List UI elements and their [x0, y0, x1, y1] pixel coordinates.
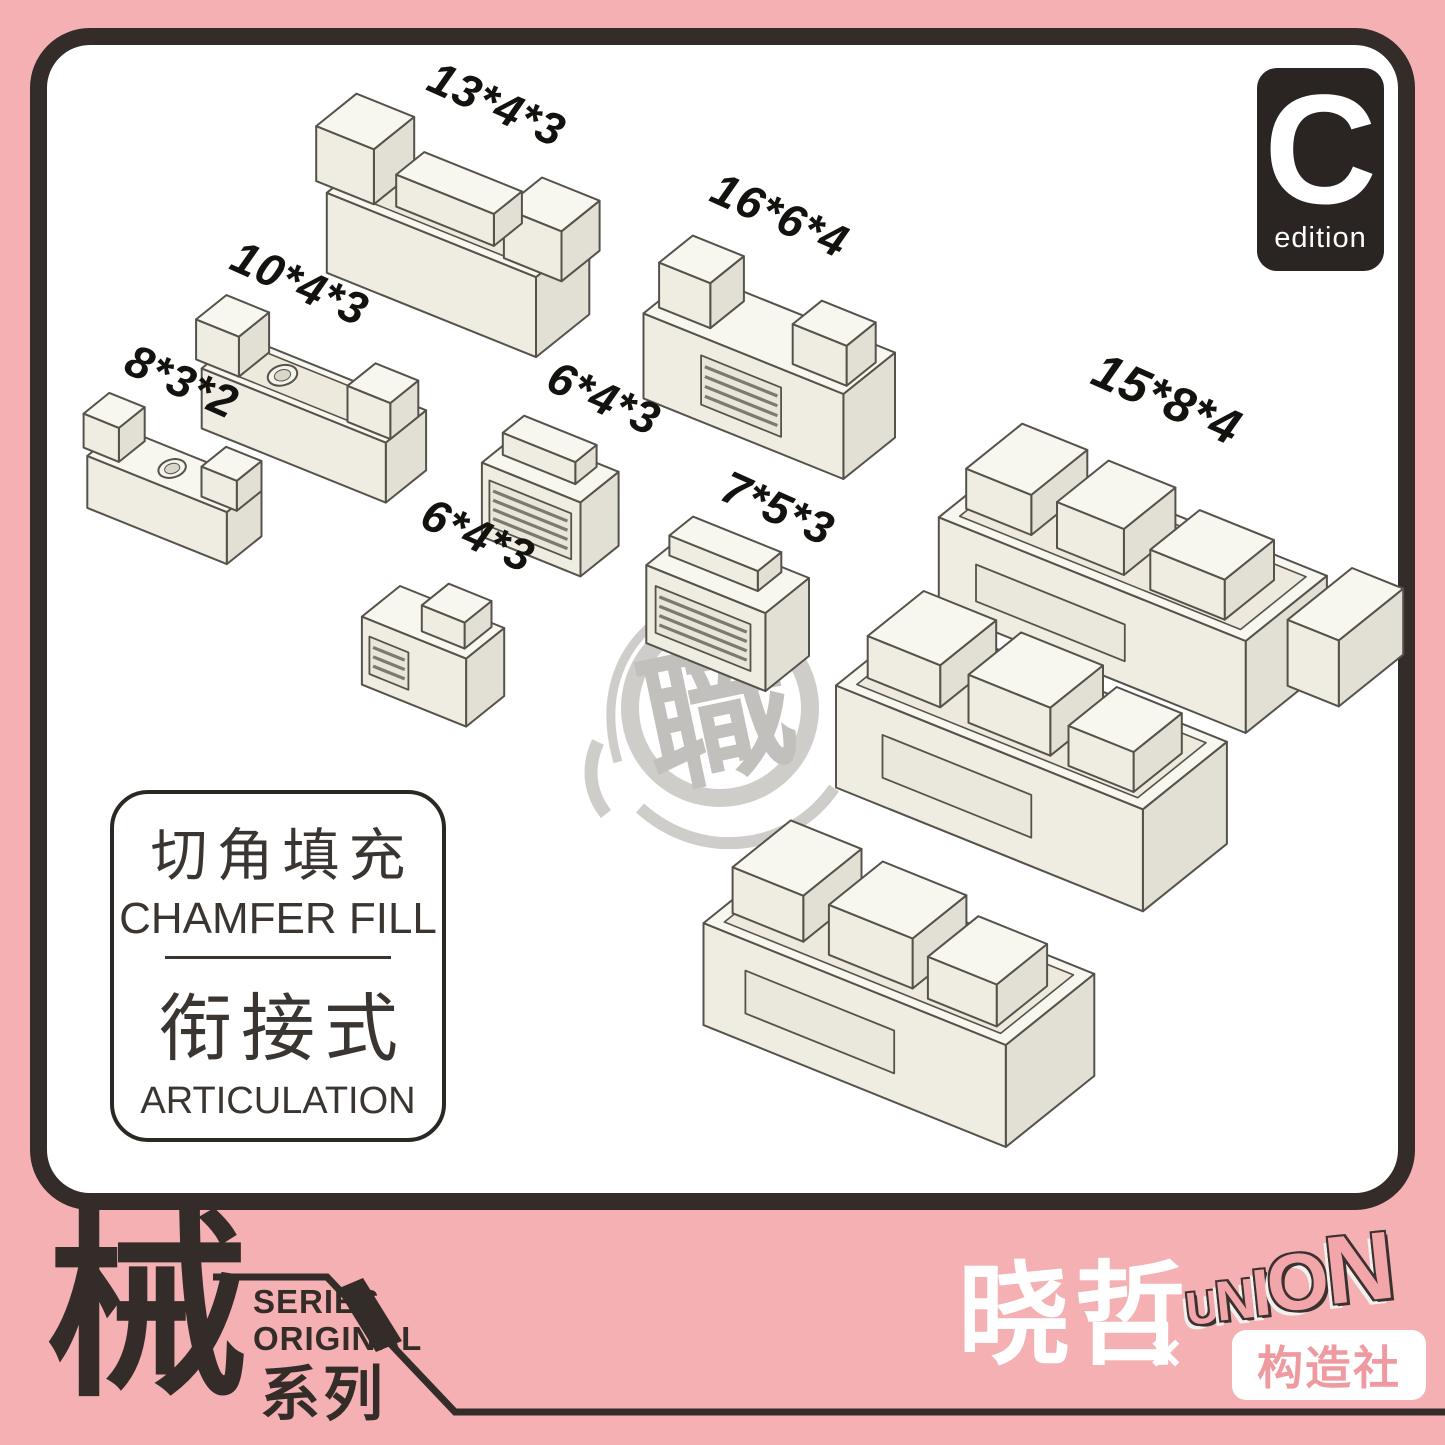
series-logo-character: 械	[46, 1206, 248, 1408]
union-letter: O	[1263, 1243, 1332, 1321]
collab-x-mark: ×	[1150, 1326, 1182, 1380]
union-letter: N	[1320, 1222, 1398, 1315]
studio-logo: 构造社	[1232, 1330, 1426, 1400]
series-logo-chinese: 系列	[260, 1346, 386, 1433]
poster: 職 13*4*3 16*6*4 10*4*3 8*3*2 6*4*3 6*4*3…	[0, 0, 1445, 1445]
series-en-line1: SERIES	[253, 1284, 422, 1321]
